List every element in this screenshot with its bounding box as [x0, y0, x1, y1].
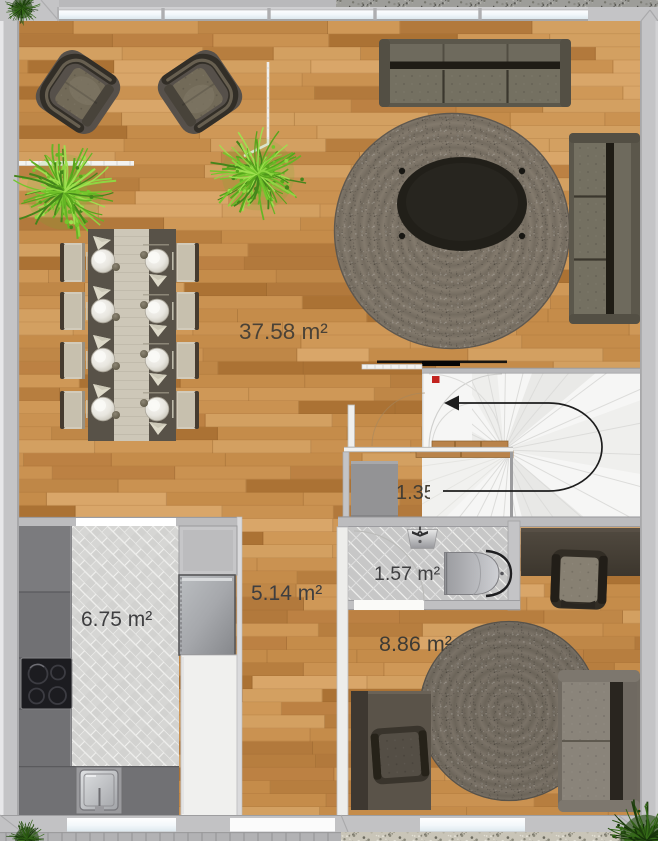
svg-text:1.35: 1.35 [396, 482, 435, 504]
svg-text:6.75 m²: 6.75 m² [81, 608, 152, 631]
svg-text:1.57 m²: 1.57 m² [374, 563, 441, 585]
svg-text:37.58 m²: 37.58 m² [239, 319, 328, 344]
svg-text:8.86 m²: 8.86 m² [379, 632, 452, 656]
svg-text:5.14 m²: 5.14 m² [251, 582, 322, 605]
